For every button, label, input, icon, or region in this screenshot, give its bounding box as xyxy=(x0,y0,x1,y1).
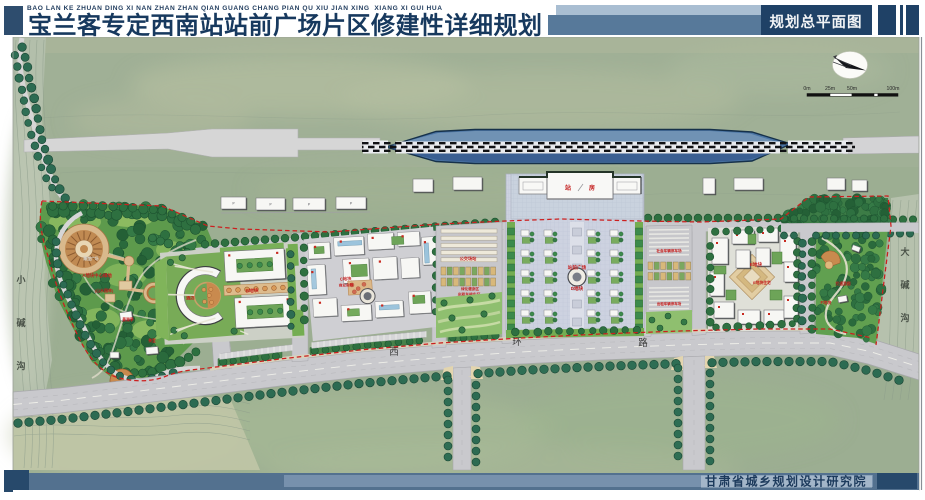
svg-text:0m: 0m xyxy=(803,86,810,92)
svg-text:公交场站: 公交场站 xyxy=(460,255,478,262)
svg-text:商业金融: 商业金融 xyxy=(339,282,354,288)
svg-text:沟: 沟 xyxy=(16,360,25,371)
svg-text:25m: 25m xyxy=(825,86,835,92)
svg-text:西: 西 xyxy=(389,347,399,358)
svg-text:BAO LAN KE ZHUAN DING XI NAN Z: BAO LAN KE ZHUAN DING XI NAN ZHAN ZHAN Q… xyxy=(27,5,443,12)
svg-text:茶室: 茶室 xyxy=(147,338,156,343)
svg-text:50m: 50m xyxy=(847,86,857,92)
svg-text:宝兰客专定西南站站前广场片区修建性详细规划: 宝兰客专定西南站站前广场片区修建性详细规划 xyxy=(28,12,543,40)
svg-text:交通游园: 交通游园 xyxy=(835,281,850,286)
svg-text:雕塑广场: 雕塑广场 xyxy=(83,256,98,261)
svg-text:规划总平面图: 规划总平面图 xyxy=(770,13,863,31)
svg-text:碱: 碱 xyxy=(900,279,909,290)
svg-text:站: 站 xyxy=(565,184,571,192)
svg-text:绿化健身区: 绿化健身区 xyxy=(461,286,479,291)
svg-text:小: 小 xyxy=(15,274,25,285)
svg-text:环: 环 xyxy=(512,337,522,348)
svg-text:社会车辆停车场: 社会车辆停车场 xyxy=(655,248,682,253)
svg-text:甘肃省城乡规划设计研究院: 甘肃省城乡规划设计研究院 xyxy=(705,474,867,489)
svg-text:A地块中心绿地: A地块中心绿地 xyxy=(82,272,112,279)
svg-text:100m: 100m xyxy=(887,86,900,92)
svg-text:沟: 沟 xyxy=(900,312,909,323)
svg-text:房: 房 xyxy=(589,184,595,192)
svg-text:(山水园林): (山水园林) xyxy=(95,287,114,293)
svg-text:站前广场: 站前广场 xyxy=(568,264,587,271)
svg-text:F地块: F地块 xyxy=(821,299,833,306)
svg-text:碱: 碱 xyxy=(16,317,25,328)
svg-text:路: 路 xyxy=(638,337,648,349)
svg-text:出租车辆停车场: 出租车辆停车场 xyxy=(657,301,682,306)
svg-text:E地块: E地块 xyxy=(750,261,763,268)
svg-text:大: 大 xyxy=(900,246,909,257)
svg-text:景观亭: 景观亭 xyxy=(121,317,134,322)
svg-text:D地块: D地块 xyxy=(571,285,584,292)
svg-text:E地块住宅: E地块住宅 xyxy=(753,280,771,285)
